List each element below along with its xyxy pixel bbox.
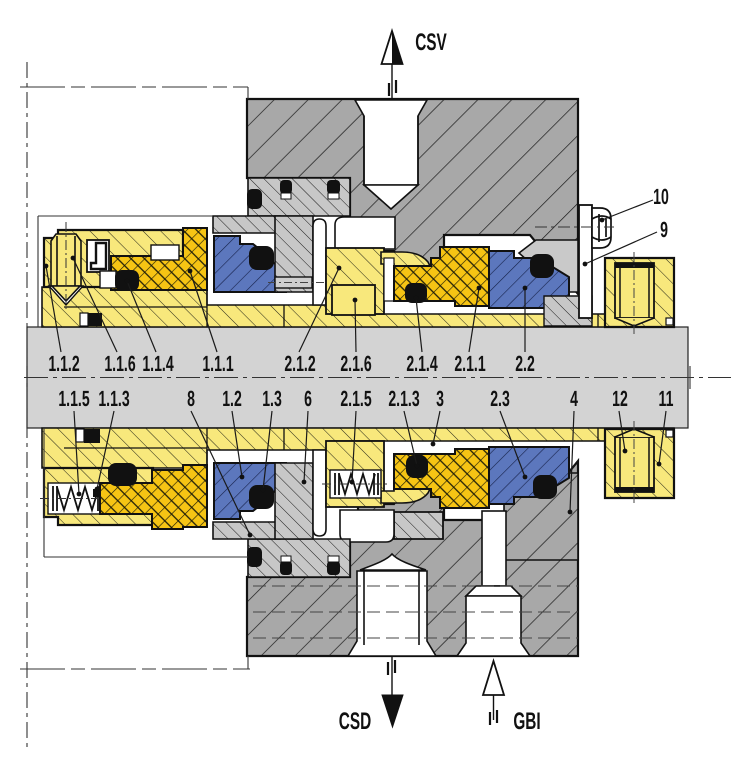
svg-text:9: 9	[660, 217, 668, 242]
svg-text:1.1.5: 1.1.5	[58, 386, 89, 411]
svg-text:1.1.2: 1.1.2	[48, 351, 79, 376]
svg-text:11: 11	[659, 386, 674, 411]
svg-text:1.1.3: 1.1.3	[98, 386, 129, 411]
svg-text:1.1.1: 1.1.1	[202, 351, 233, 376]
svg-text:1.3: 1.3	[262, 386, 282, 411]
svg-text:1.1.4: 1.1.4	[142, 351, 174, 376]
svg-text:2.1.3: 2.1.3	[388, 386, 419, 411]
svg-text:GBI: GBI	[513, 708, 540, 735]
svg-text:CSV: CSV	[415, 29, 447, 56]
svg-text:CSD: CSD	[339, 708, 371, 735]
svg-text:2.2: 2.2	[515, 351, 535, 376]
svg-text:2.1.5: 2.1.5	[340, 386, 371, 411]
svg-text:6: 6	[304, 386, 312, 411]
svg-text:8: 8	[187, 386, 195, 411]
svg-text:4: 4	[570, 386, 578, 411]
svg-text:1.2: 1.2	[222, 386, 242, 411]
svg-text:2.1.4: 2.1.4	[406, 351, 438, 376]
svg-text:10: 10	[653, 184, 669, 209]
svg-text:2.3: 2.3	[490, 386, 510, 411]
svg-text:2.1.2: 2.1.2	[284, 351, 315, 376]
svg-text:3: 3	[436, 386, 444, 411]
svg-text:1.1.6: 1.1.6	[104, 351, 135, 376]
svg-text:12: 12	[612, 386, 628, 411]
svg-text:2.1.1: 2.1.1	[454, 351, 485, 376]
svg-text:2.1.6: 2.1.6	[340, 351, 371, 376]
